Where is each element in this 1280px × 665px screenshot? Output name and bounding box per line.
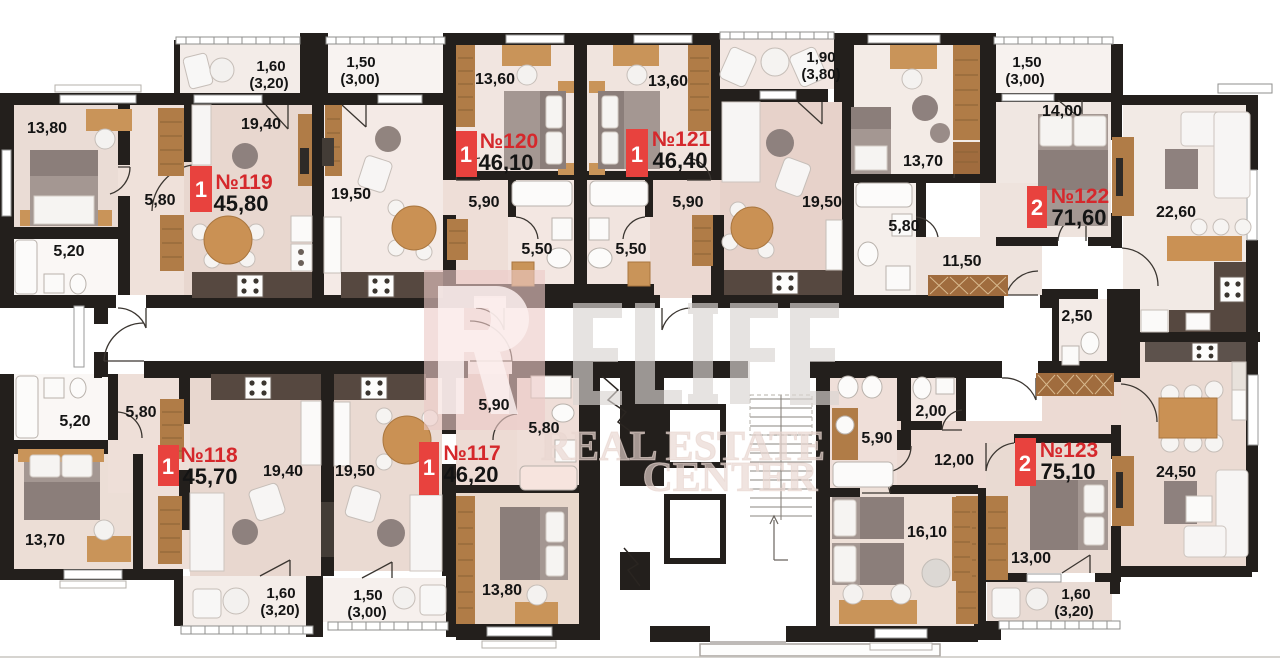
svg-text:5,90: 5,90 xyxy=(478,397,509,414)
svg-text:71,60: 71,60 xyxy=(1051,205,1106,230)
svg-text:19,40: 19,40 xyxy=(241,116,281,133)
svg-text:13,80: 13,80 xyxy=(27,120,67,137)
svg-text:5,90: 5,90 xyxy=(468,194,499,211)
svg-text:13,80: 13,80 xyxy=(482,582,522,599)
svg-text:2,50: 2,50 xyxy=(1061,308,1092,325)
svg-text:CENTER: CENTER xyxy=(642,455,818,501)
svg-text:45,80: 45,80 xyxy=(213,191,268,216)
svg-text:(3,00): (3,00) xyxy=(347,604,386,621)
svg-text:1: 1 xyxy=(162,454,174,479)
svg-text:5,90: 5,90 xyxy=(672,194,703,211)
svg-text:45,70: 45,70 xyxy=(182,464,237,489)
svg-text:13,70: 13,70 xyxy=(903,153,943,170)
svg-text:(3,20): (3,20) xyxy=(260,602,299,619)
svg-text:(3,00): (3,00) xyxy=(340,71,379,88)
svg-text:5,80: 5,80 xyxy=(125,404,156,421)
svg-text:1,60: 1,60 xyxy=(1061,586,1090,603)
svg-text:5,80: 5,80 xyxy=(144,192,175,209)
svg-text:1,60: 1,60 xyxy=(256,58,285,75)
svg-text:11,50: 11,50 xyxy=(942,253,981,270)
svg-text:14,00: 14,00 xyxy=(1042,103,1082,120)
svg-text:46,10: 46,10 xyxy=(478,150,533,175)
svg-text:1: 1 xyxy=(631,142,643,167)
svg-text:5,20: 5,20 xyxy=(59,413,90,430)
svg-text:1,50: 1,50 xyxy=(353,587,382,604)
svg-text:5,50: 5,50 xyxy=(521,241,552,258)
svg-text:75,10: 75,10 xyxy=(1040,459,1095,484)
svg-text:(3,80): (3,80) xyxy=(801,66,840,83)
svg-text:19,40: 19,40 xyxy=(263,463,303,480)
svg-text:1,90: 1,90 xyxy=(806,49,835,66)
svg-text:1,50: 1,50 xyxy=(1012,54,1041,71)
svg-text:22,60: 22,60 xyxy=(1156,204,1196,221)
svg-text:5,20: 5,20 xyxy=(53,243,84,260)
svg-text:1: 1 xyxy=(423,455,435,480)
svg-text:5,90: 5,90 xyxy=(861,430,892,447)
svg-text:46,20: 46,20 xyxy=(443,462,498,487)
svg-text:19,50: 19,50 xyxy=(802,194,842,211)
svg-text:13,60: 13,60 xyxy=(475,71,515,88)
svg-text:2,00: 2,00 xyxy=(915,403,946,420)
svg-text:1,50: 1,50 xyxy=(346,54,375,71)
svg-text:13,00: 13,00 xyxy=(1011,550,1051,567)
svg-text:46,40: 46,40 xyxy=(652,148,707,173)
svg-text:1: 1 xyxy=(195,177,207,202)
svg-text:5,80: 5,80 xyxy=(528,420,559,437)
svg-text:13,70: 13,70 xyxy=(25,532,65,549)
svg-text:13,60: 13,60 xyxy=(648,73,688,90)
svg-text:19,50: 19,50 xyxy=(335,463,375,480)
svg-text:5,80: 5,80 xyxy=(888,218,919,235)
svg-text:2: 2 xyxy=(1031,195,1043,220)
svg-text:2: 2 xyxy=(1019,451,1031,476)
svg-text:5,50: 5,50 xyxy=(615,241,646,258)
svg-text:(3,20): (3,20) xyxy=(1054,603,1093,620)
svg-text:(3,20): (3,20) xyxy=(249,75,288,92)
svg-text:(3,00): (3,00) xyxy=(1005,71,1044,88)
svg-text:19,50: 19,50 xyxy=(331,186,371,203)
svg-text:16,10: 16,10 xyxy=(907,524,947,541)
svg-text:1: 1 xyxy=(460,142,472,167)
svg-text:1,60: 1,60 xyxy=(266,585,295,602)
svg-text:12,00: 12,00 xyxy=(934,452,974,469)
svg-text:24,50: 24,50 xyxy=(1156,464,1196,481)
